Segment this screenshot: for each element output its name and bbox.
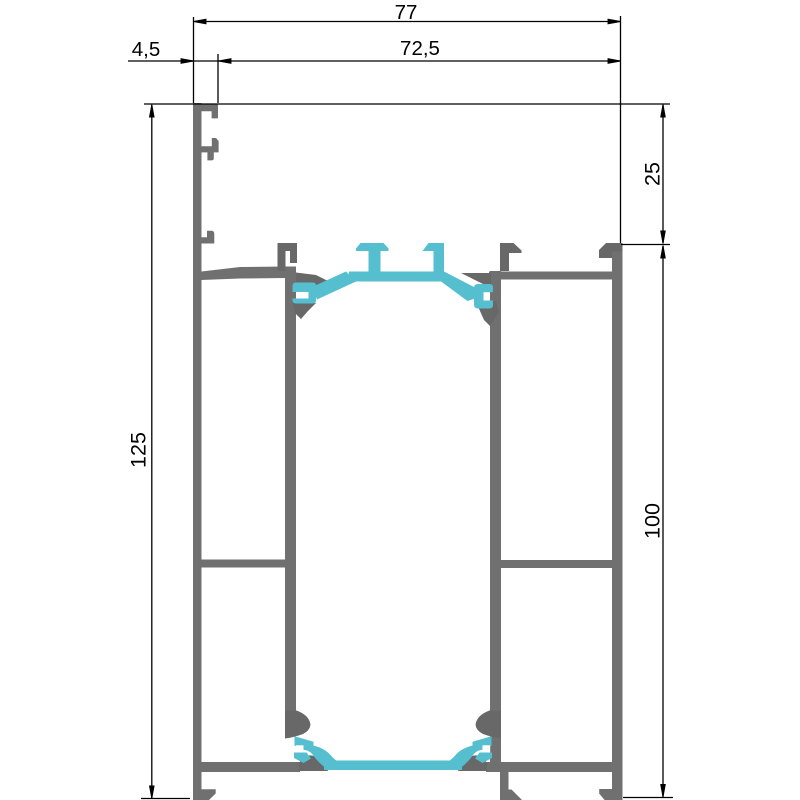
svg-text:100: 100	[641, 503, 665, 539]
svg-text:25: 25	[641, 162, 665, 186]
svg-text:4,5: 4,5	[132, 38, 161, 61]
svg-text:125: 125	[127, 432, 151, 468]
svg-text:72,5: 72,5	[400, 37, 440, 60]
svg-text:77: 77	[395, 1, 418, 24]
